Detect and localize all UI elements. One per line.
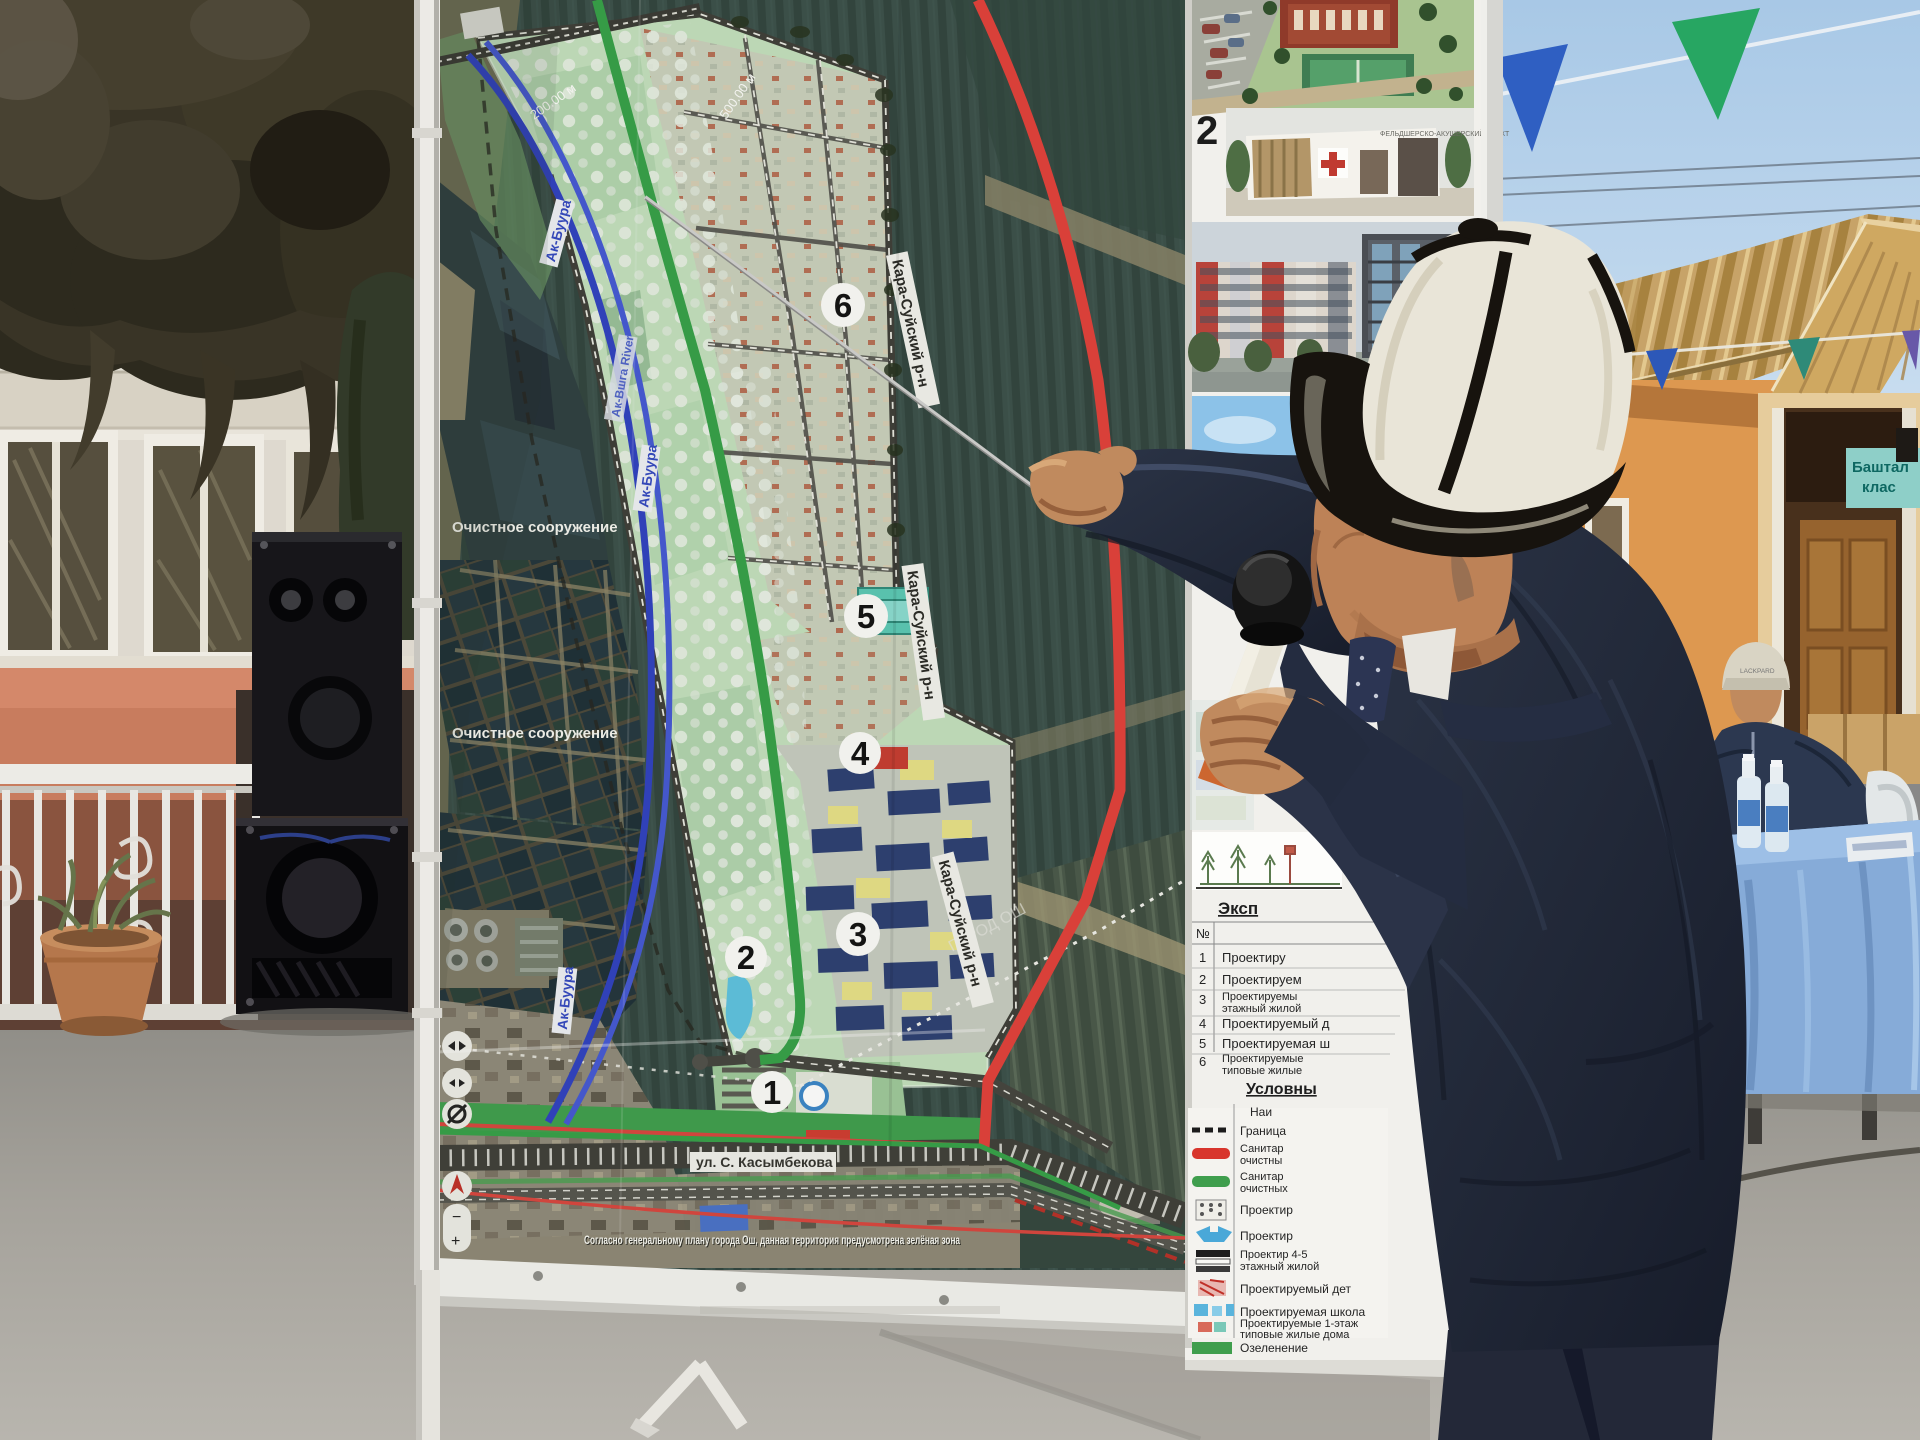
svg-text:4: 4 — [1199, 1016, 1206, 1031]
svg-text:Условны: Условны — [1246, 1081, 1317, 1098]
svg-text:Проектируемая ш: Проектируемая ш — [1222, 1036, 1330, 1051]
svg-text:клас: клас — [1862, 479, 1896, 496]
svg-text:2: 2 — [1199, 972, 1206, 987]
svg-text:Проектир: Проектир — [1240, 1203, 1293, 1217]
svg-text:типовые жилые: типовые жилые — [1222, 1065, 1302, 1077]
svg-text:типовые жилые дома: типовые жилые дома — [1240, 1329, 1350, 1341]
svg-text:очистны: очистны — [1240, 1155, 1282, 1167]
svg-text:5: 5 — [1199, 1036, 1206, 1051]
svg-text:Проектируемый дет: Проектируемый дет — [1240, 1282, 1351, 1296]
svg-text:№: № — [1196, 926, 1210, 941]
svg-text:Проектируем: Проектируем — [1222, 972, 1302, 987]
svg-text:Наи: Наи — [1250, 1105, 1272, 1119]
svg-text:Проектируемые: Проектируемые — [1222, 1053, 1303, 1065]
svg-text:LACKPARD: LACKPARD — [1740, 668, 1775, 675]
svg-text:Проектируемый д: Проектируемый д — [1222, 1016, 1330, 1031]
svg-text:Санитар: Санитар — [1240, 1143, 1284, 1155]
svg-text:6: 6 — [1199, 1054, 1206, 1069]
svg-text:Проектируемы: Проектируемы — [1222, 991, 1297, 1003]
svg-text:1: 1 — [1199, 950, 1206, 965]
svg-text:3: 3 — [1199, 992, 1206, 1007]
svg-text:Проектируемая школа: Проектируемая школа — [1240, 1305, 1365, 1319]
svg-text:Проектир: Проектир — [1240, 1229, 1293, 1243]
svg-text:Санитар: Санитар — [1240, 1171, 1284, 1183]
svg-text:этажный жилой: этажный жилой — [1240, 1261, 1319, 1273]
svg-text:2: 2 — [1196, 109, 1218, 153]
svg-text:Проектир 4-5: Проектир 4-5 — [1240, 1249, 1307, 1261]
svg-text:Проектиру: Проектиру — [1222, 950, 1286, 965]
svg-text:этажный жилой: этажный жилой — [1222, 1003, 1301, 1015]
svg-text:Эксп: Эксп — [1218, 899, 1258, 918]
svg-text:Озеленение: Озеленение — [1240, 1341, 1308, 1355]
svg-text:Граница: Граница — [1240, 1124, 1286, 1138]
svg-text:очистных: очистных — [1240, 1183, 1288, 1195]
